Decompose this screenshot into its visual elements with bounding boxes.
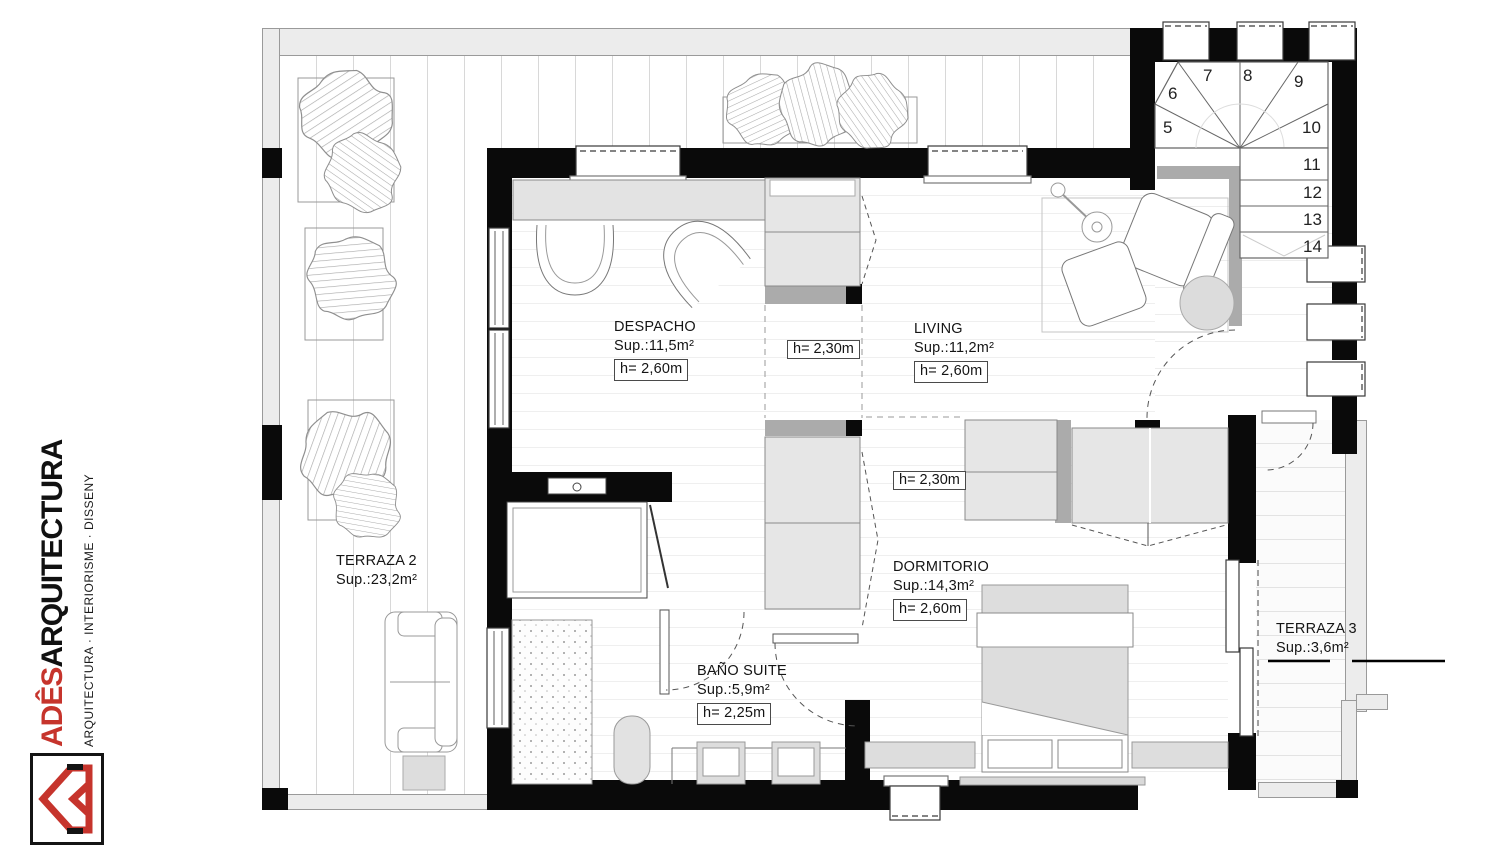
room-name: TERRAZA 2: [336, 552, 417, 571]
shower-floor-textured: [512, 620, 592, 784]
room-name: BAÑO SUITE: [697, 662, 787, 681]
hall-closets: [765, 178, 878, 628]
window-despacho-left-b: [489, 330, 509, 428]
room-label-terraza2: TERRAZA 2 Sup.:23,2m²: [336, 552, 417, 590]
window-dorm-bottom: [884, 776, 948, 820]
bed: [977, 585, 1133, 772]
window-despacho-left-a: [489, 228, 509, 328]
floor-lamp-base: [1051, 183, 1065, 197]
plan-drawing-layer: [0, 0, 1500, 855]
wardrobe-door-swing: [1072, 525, 1226, 546]
floor-plan-canvas: DESPACHO Sup.:11,5m² h= 2,60m LIVING Sup…: [0, 0, 1500, 855]
pillow-right: [1058, 740, 1122, 768]
sink-2-basin: [778, 748, 814, 776]
closet-lower-door-swing: [862, 452, 878, 628]
ceiling-height-badge-upper: h= 2,30m: [787, 340, 860, 359]
brand-logo-glyph: [33, 756, 101, 842]
windows-stair-right: [1307, 246, 1365, 396]
logo-mark-bottom: [67, 828, 83, 834]
toilet: [614, 716, 650, 784]
room-label-despacho: DESPACHO Sup.:11,5m² h= 2,60m: [614, 318, 696, 381]
room-name: DORMITORIO: [893, 558, 989, 577]
brand-wordmark: ADÊSARQUITECTURA: [36, 440, 70, 747]
brand-tagline: ARQUITECTURA · INTERIORISME · DISSENY: [82, 474, 96, 747]
logo-house-icon: [43, 768, 89, 830]
living-furniture: [1042, 183, 1236, 332]
room-label-dormitorio: DORMITORIO Sup.:14,3m² h= 2,60m: [893, 558, 989, 621]
brand-name-rest: ARQUITECTURA: [36, 440, 69, 668]
nightstand-right: [1132, 742, 1228, 768]
ceiling-height-badge-lower: h= 2,30m: [893, 471, 966, 490]
side-table: [1180, 276, 1234, 330]
door-terrace3-swing: [1266, 423, 1313, 470]
room-height-badge: h= 2,60m: [614, 359, 688, 381]
stair-number-11: 11: [1303, 155, 1321, 175]
room-name: LIVING: [914, 320, 994, 339]
closet-upper-top: [770, 180, 855, 196]
room-area: Sup.:11,2m²: [914, 339, 994, 358]
desk: [513, 180, 768, 220]
logo-mark-top: [67, 764, 83, 770]
despacho-furniture: [513, 180, 768, 308]
room-area: Sup.:11,5m²: [614, 337, 696, 356]
room-height-badge: h= 2,25m: [697, 703, 771, 725]
room-height-badge: h= 2,60m: [914, 361, 988, 383]
room-label-living: LIVING Sup.:11,2m² h= 2,60m: [914, 320, 994, 383]
stair-number-6: 6: [1168, 84, 1177, 104]
stair-number-5: 5: [1163, 118, 1172, 138]
sliding-door-terrace3: [1226, 560, 1258, 736]
radiator: [960, 777, 1145, 785]
room-height-badge: h= 2,60m: [893, 599, 967, 621]
stair-number-9: 9: [1294, 72, 1303, 92]
room-name: DESPACHO: [614, 318, 696, 337]
room-label-terraza3: TERRAZA 3 Sup.:3,6m²: [1276, 620, 1357, 658]
stair-number-7: 7: [1203, 66, 1212, 86]
door-bano-leaf: [660, 610, 669, 694]
door-living-entry: [1147, 330, 1235, 418]
wardrobe-left: [965, 420, 1057, 520]
room-area: Sup.:5,9m²: [697, 681, 787, 700]
sink-1-basin: [703, 748, 739, 776]
stair-number-8: 8: [1243, 66, 1252, 86]
window-shower-left: [487, 628, 509, 728]
room-area: Sup.:14,3m²: [893, 577, 989, 596]
nightstand-left: [865, 742, 975, 768]
room-name: TERRAZA 3: [1276, 620, 1357, 639]
stair-number-14: 14: [1303, 237, 1322, 257]
plant: [289, 216, 413, 340]
shower-head: [573, 483, 581, 491]
door-dorm-leaf: [773, 634, 858, 643]
closet-upper-door-swing: [862, 196, 876, 284]
shower-tray: [507, 502, 647, 598]
brand-name-accent: ADÊS: [36, 668, 69, 747]
windows-stair-top: [1163, 22, 1355, 60]
stair-number-13: 13: [1303, 210, 1322, 230]
stair-number-12: 12: [1303, 183, 1322, 203]
terrace-furniture: [385, 612, 457, 790]
stair-number-10: 10: [1302, 118, 1321, 138]
shower-glass-door: [650, 505, 668, 588]
room-label-bano: BAÑO SUITE Sup.:5,9m² h= 2,25m: [697, 662, 787, 725]
outdoor-sofa: [385, 612, 457, 752]
door-terrace3-leaf: [1262, 411, 1316, 423]
window-despacho-top: [570, 146, 686, 183]
floor-lamp-bulb: [1092, 222, 1102, 232]
door-dorm-swing: [775, 643, 858, 726]
brand-logo: [30, 753, 104, 845]
room-area: Sup.:3,6m²: [1276, 639, 1357, 658]
pillow-left: [988, 740, 1052, 768]
outdoor-table: [403, 756, 445, 790]
window-living-top: [924, 146, 1031, 183]
room-area: Sup.:23,2m²: [336, 571, 417, 590]
